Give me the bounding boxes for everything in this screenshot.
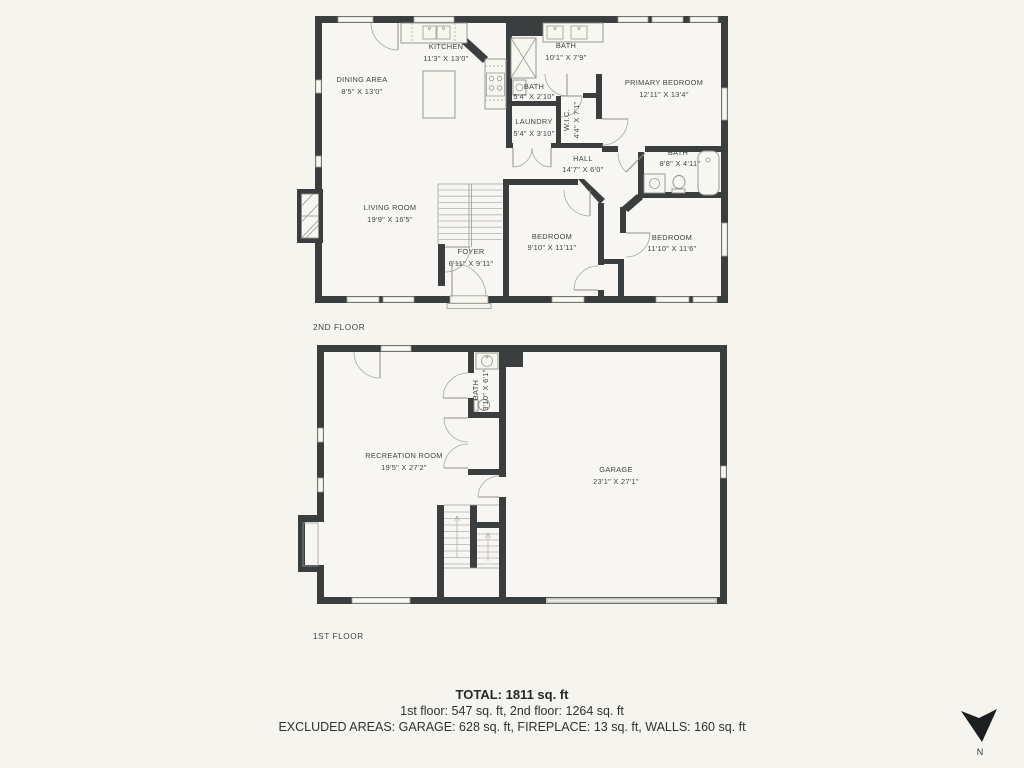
room-label-bedroom-mid: BEDROOM <box>532 232 572 241</box>
room-label-bath-top: BATH <box>556 41 576 50</box>
floor-plan-canvas: DINING AREA 8'5" X 13'0" KITCHEN 11'3" X… <box>0 0 1024 768</box>
room-label-recreation: RECREATION ROOM <box>365 451 442 460</box>
room-label-dining: DINING AREA <box>337 75 388 84</box>
room-label-bath-1st: BATH <box>471 380 480 400</box>
kitchen-island <box>423 71 455 118</box>
first-floor-label: 1ST FLOOR <box>313 632 364 641</box>
room-dims-bedroom-right: 11'10" X 11'6" <box>648 244 697 253</box>
second-floor-label: 2ND FLOOR <box>313 323 365 332</box>
room-dims-dining: 8'5" X 13'0" <box>341 87 382 96</box>
summary-floors: 1st floor: 547 sq. ft, 2nd floor: 1264 s… <box>400 704 624 718</box>
room-label-kitchen: KITCHEN <box>429 42 464 51</box>
room-label-wic: W.I.C. <box>562 109 571 131</box>
room-label-bath-right: BATH <box>668 148 688 157</box>
room-dims-hall: 14'7" X 6'0" <box>562 165 603 174</box>
room-dims-living: 19'9" X 16'5" <box>367 215 413 224</box>
second-floor-plan: DINING AREA 8'5" X 13'0" KITCHEN 11'3" X… <box>297 16 728 332</box>
summary-total: TOTAL: 1811 sq. ft <box>456 687 570 702</box>
room-dims-foyer: 6'11" X 9'11" <box>449 259 494 268</box>
room-label-hall: HALL <box>573 154 593 163</box>
room-label-bath-small: BATH <box>524 82 544 91</box>
first-floor-plan: RECREATION ROOM 19'5" X 27'2" BATH 3'10"… <box>298 345 727 641</box>
room-label-garage: GARAGE <box>599 465 632 474</box>
room-dims-bath-right: 8'8" X 4'11" <box>660 159 701 168</box>
room-label-living: LIVING ROOM <box>364 203 417 212</box>
fireplace <box>297 189 323 243</box>
garage-door <box>546 598 717 604</box>
first-floor-interior <box>317 345 727 604</box>
room-dims-laundry: 5'4" X 3'10" <box>513 129 554 138</box>
room-label-laundry: LAUNDRY <box>515 117 552 126</box>
summary-excluded: EXCLUDED AREAS: GARAGE: 628 sq. ft, FIRE… <box>278 720 746 734</box>
room-label-foyer: FOYER <box>458 247 485 256</box>
room-dims-bath-small: 5'4" X 2'10" <box>513 92 554 101</box>
room-dims-kitchen: 11'3" X 13'0" <box>423 54 468 63</box>
room-dims-bath-1st: 3'10" X 6'1" <box>481 369 490 410</box>
room-dims-bedroom-mid: 9'10" X 11'11" <box>528 243 577 252</box>
room-dims-recreation: 19'5" X 27'2" <box>381 463 427 472</box>
room-dims-primary-bedroom: 12'11" X 13'4" <box>639 90 689 99</box>
bathtub <box>698 151 719 195</box>
room-dims-bath-top: 10'1" X 7'9" <box>545 53 586 62</box>
room-dims-garage: 23'1" X 27'1" <box>593 477 639 486</box>
room-label-primary-bedroom: PRIMARY BEDROOM <box>625 78 703 87</box>
room-label-bedroom-right: BEDROOM <box>652 233 692 242</box>
compass-north-label: N <box>977 747 984 757</box>
room-dims-wic: 4'4" X 7'1" <box>572 102 581 139</box>
